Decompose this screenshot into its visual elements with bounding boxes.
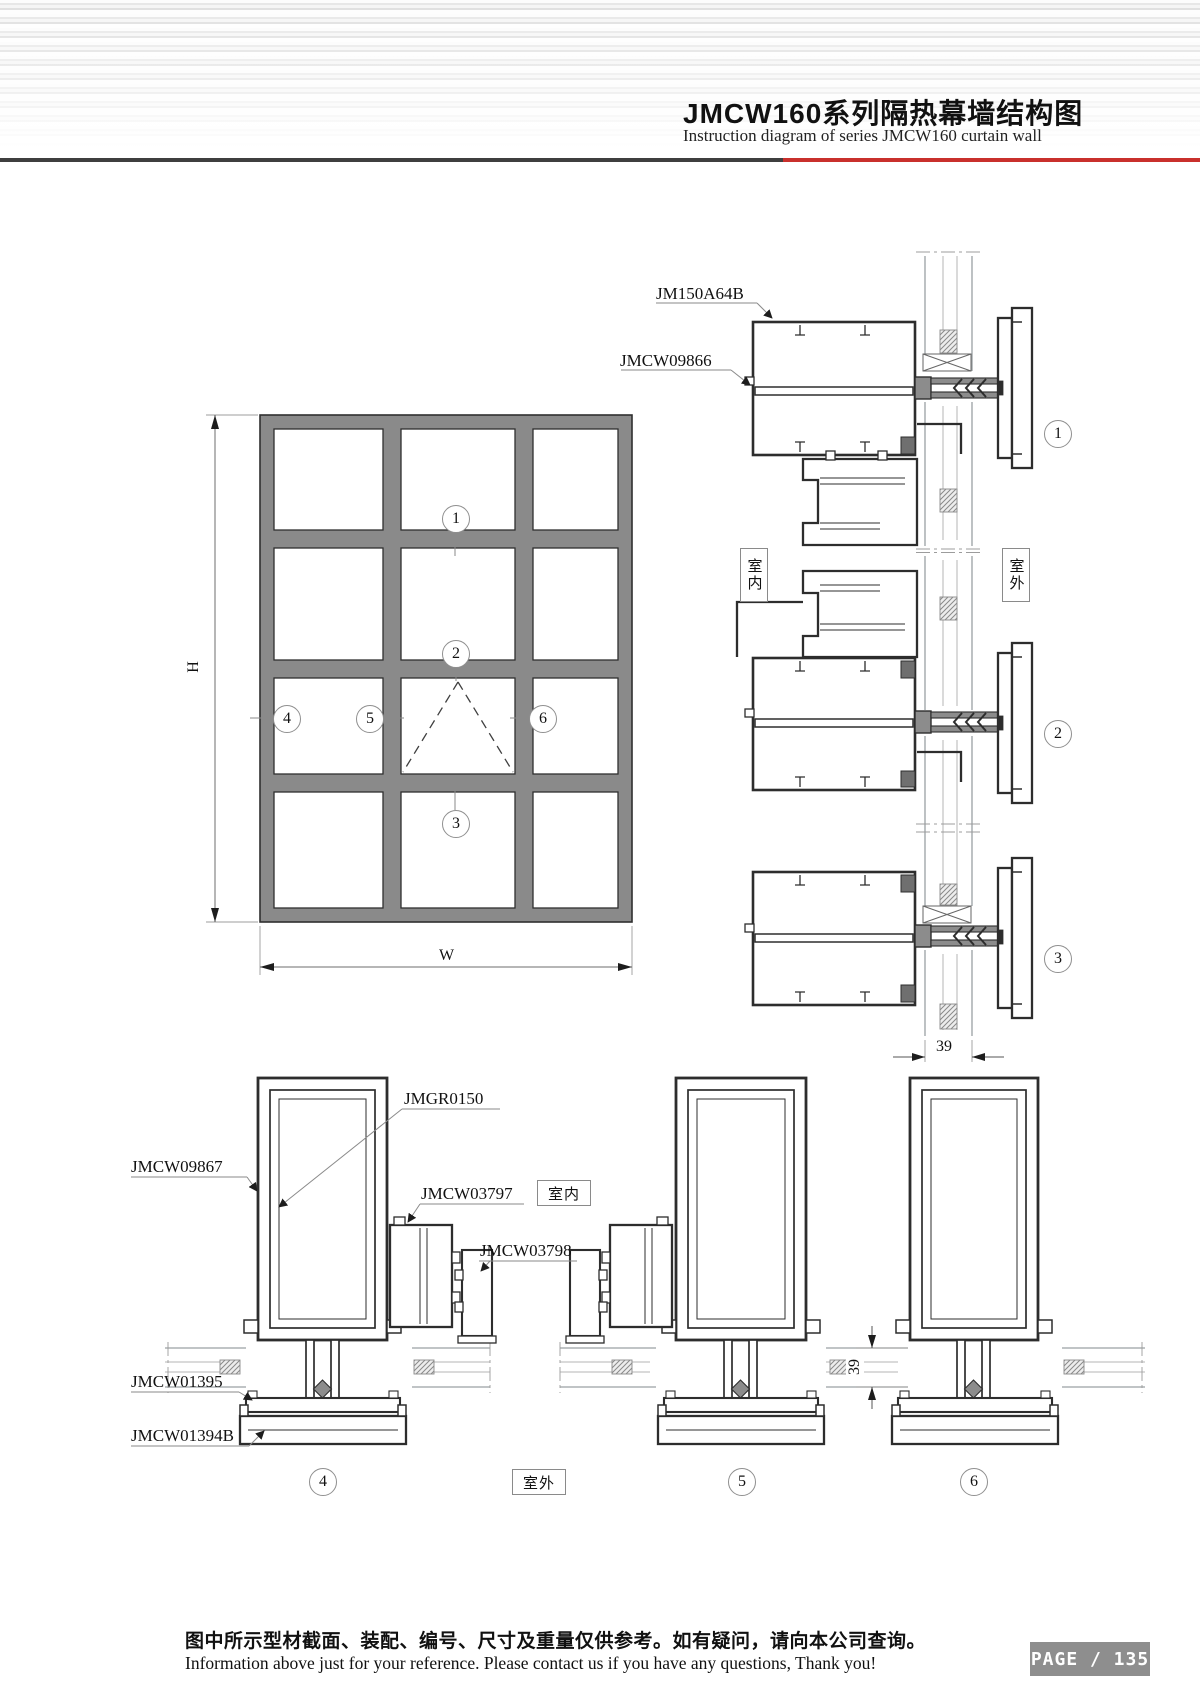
detail-2-drawing [745, 643, 1032, 803]
section-callout-1: 1 [1044, 420, 1072, 448]
part-label-jmcw01395: JMCW01395 [131, 1372, 223, 1392]
detail-6-drawing [892, 1078, 1058, 1444]
outdoor-label-section: 室外 [1002, 548, 1030, 602]
footer-note-zh: 图中所示型材截面、装配、编号、尺寸及重量仅供参考。如有疑问，请向本公司查询。 [185, 1626, 926, 1653]
callout-5: 5 [356, 705, 384, 733]
elevation-grid [250, 415, 632, 922]
dim-39-top-label: 39 [934, 1038, 954, 1056]
part-label-jmcw01394b: JMCW01394B [131, 1426, 234, 1446]
section-callout-6: 6 [960, 1468, 988, 1496]
part-label-jm150a64b: JM150A64B [656, 284, 744, 304]
detail-5-drawing [566, 1078, 824, 1444]
section-callout-3: 3 [1044, 945, 1072, 973]
catalog-page: JMCW160系列隔热幕墙结构图 Instruction diagram of … [0, 0, 1200, 1697]
outdoor-label-plan: 室外 [512, 1469, 566, 1495]
dim-39-bottom-label: 39 [846, 1357, 864, 1377]
callout-2: 2 [442, 640, 470, 668]
section-callout-5: 5 [728, 1468, 756, 1496]
callout-3: 3 [442, 810, 470, 838]
callout-1: 1 [442, 505, 470, 533]
footer-note-en: Information above just for your referenc… [185, 1653, 876, 1674]
section-callout-4: 4 [309, 1468, 337, 1496]
part-label-jmcw03797: JMCW03797 [421, 1184, 513, 1204]
part-label-jmcw03798: JMCW03798 [480, 1241, 572, 1261]
part-label-jmgr0150: JMGR0150 [404, 1089, 483, 1109]
callout-4: 4 [273, 705, 301, 733]
dim-height-label: H [185, 659, 203, 675]
dim-width-label: W [437, 947, 456, 965]
callout-6: 6 [529, 705, 557, 733]
detail-1-drawing [737, 308, 1032, 657]
detail-3-drawing [745, 858, 1032, 1018]
part-label-jmcw09866: JMCW09866 [620, 351, 712, 371]
section-callout-2: 2 [1044, 720, 1072, 748]
page-number-badge: PAGE / 135 [1030, 1642, 1150, 1676]
part-label-jmcw09867: JMCW09867 [131, 1157, 223, 1177]
glass-columns [916, 252, 980, 1036]
detail-4-drawing [240, 1078, 496, 1444]
indoor-label-plan: 室内 [537, 1180, 591, 1206]
indoor-label-section: 室内 [740, 548, 768, 602]
